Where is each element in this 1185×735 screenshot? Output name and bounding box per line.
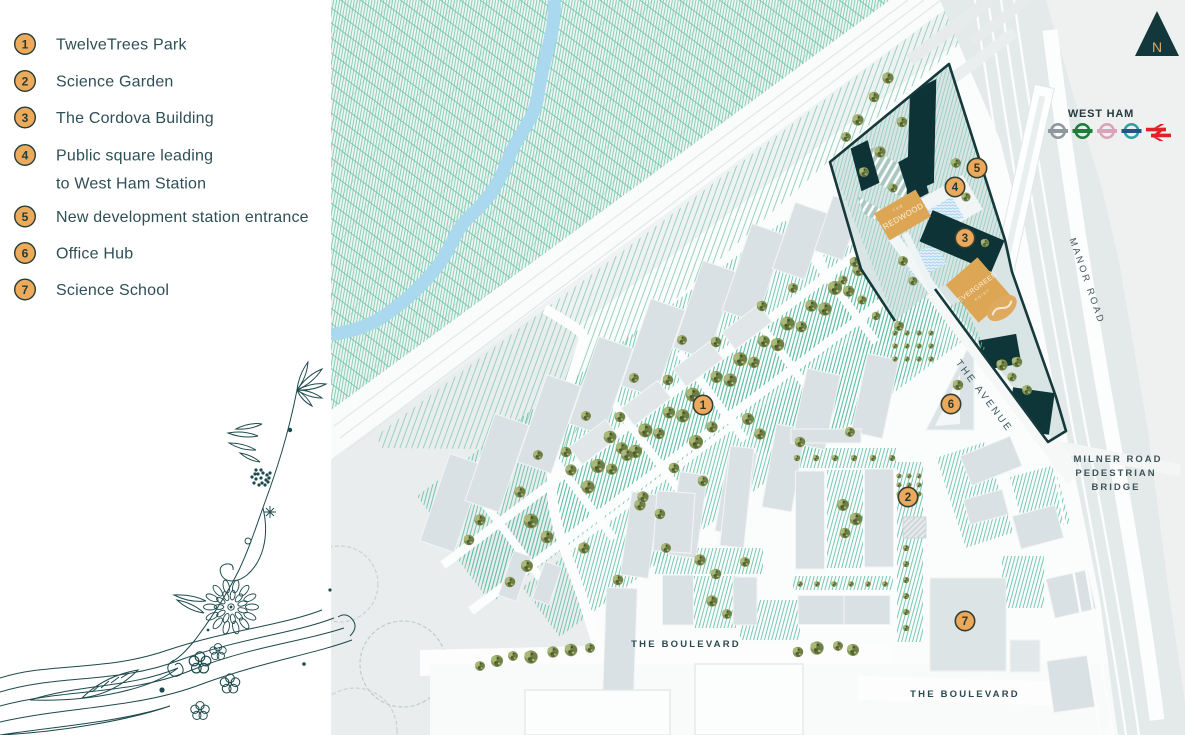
svg-text:2: 2 [22,74,29,88]
svg-text:Science School: Science School [56,282,169,299]
svg-text:5: 5 [22,210,29,224]
svg-text:5: 5 [974,163,981,175]
svg-text:4: 4 [22,148,29,162]
svg-text:THE BOULEVARD: THE BOULEVARD [631,639,741,650]
svg-text:7: 7 [962,616,968,628]
svg-text:3: 3 [962,233,968,245]
svg-text:6: 6 [22,246,29,260]
svg-text:TwelveTrees Park: TwelveTrees Park [56,37,187,54]
svg-text:BRIDGE: BRIDGE [1092,482,1141,493]
svg-text:WEST HAM: WEST HAM [1068,108,1134,120]
svg-text:1: 1 [700,400,707,412]
svg-text:MILNER ROAD: MILNER ROAD [1073,454,1162,465]
svg-text:N: N [1152,39,1162,55]
svg-text:4: 4 [952,182,959,194]
svg-text:Public square leading: Public square leading [56,148,213,165]
svg-text:1: 1 [22,37,29,51]
svg-text:PEDESTRIAN: PEDESTRIAN [1075,468,1156,479]
svg-text:The Cordova Building: The Cordova Building [56,110,214,127]
svg-text:2: 2 [905,492,911,504]
svg-text:3: 3 [22,111,29,125]
svg-text:THE BOULEVARD: THE BOULEVARD [910,689,1020,700]
svg-text:Office Hub: Office Hub [56,246,133,263]
svg-text:New development station entran: New development station entrance [56,209,309,226]
svg-text:7: 7 [22,283,29,297]
svg-text:to West Ham Station: to West Ham Station [56,176,206,193]
svg-text:Science Garden: Science Garden [56,74,174,91]
svg-text:6: 6 [948,399,954,411]
